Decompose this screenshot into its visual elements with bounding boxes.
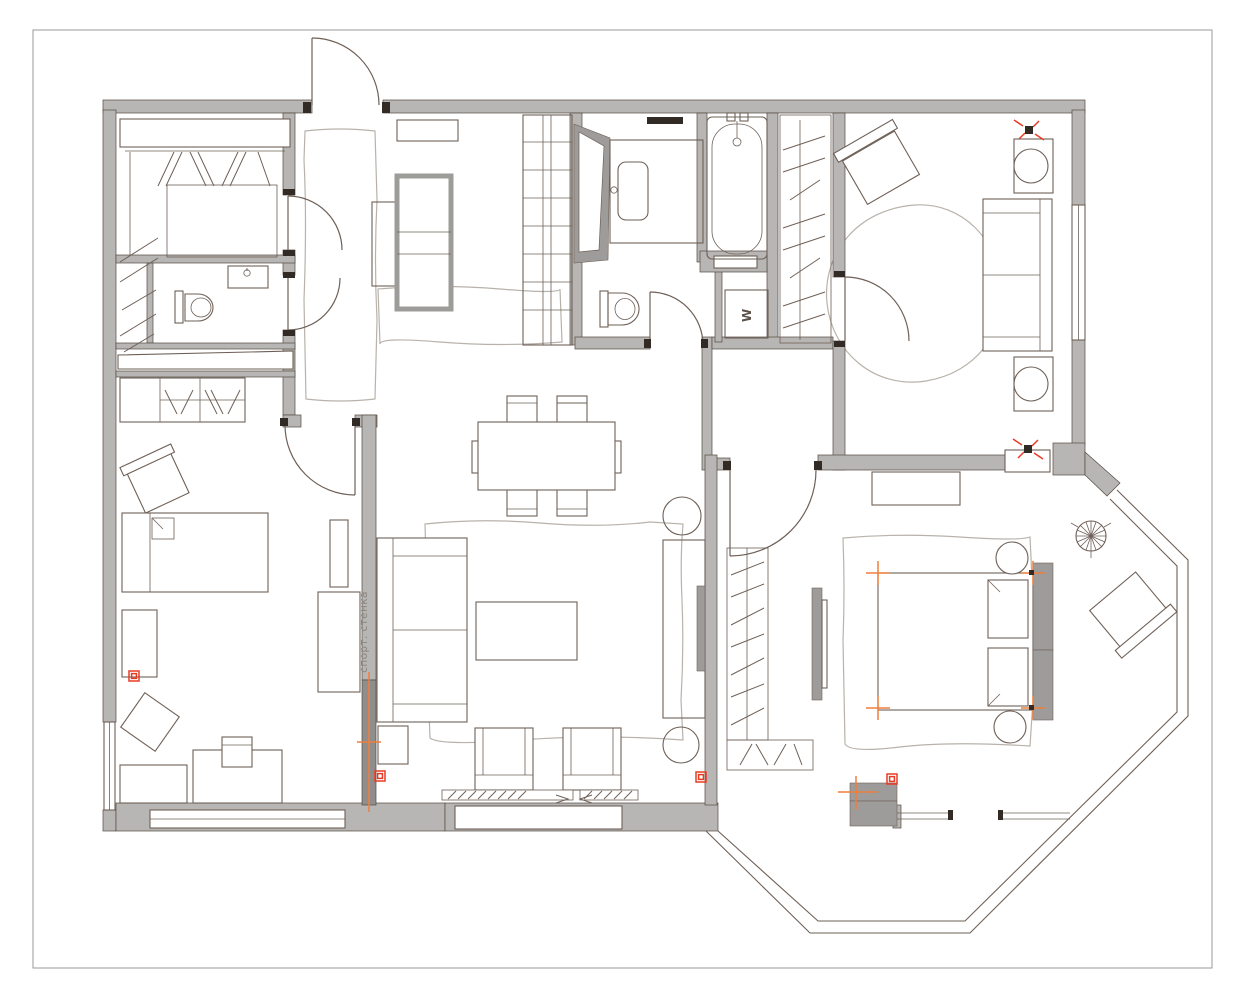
- bedroom-wardrobe: [727, 548, 813, 770]
- kids-room-door: [280, 418, 360, 495]
- walk-in-closet: [120, 119, 290, 352]
- wc: [175, 266, 268, 323]
- headboard-top: [1033, 563, 1053, 650]
- bedroom-tv: [812, 588, 827, 700]
- living-armchair-2: [563, 728, 621, 790]
- headboard-bottom: [1033, 650, 1053, 720]
- closet-island: [167, 185, 277, 257]
- bathroom-vanity: [610, 140, 703, 243]
- living-armchair-1: [475, 728, 533, 790]
- wardrobe-room: [780, 115, 831, 343]
- bathroom-door: [644, 292, 708, 348]
- plant-bottom: [663, 727, 699, 763]
- vent-mark: [647, 117, 683, 124]
- ceiling-light-1: [1014, 120, 1044, 140]
- entrance-door: [303, 38, 390, 113]
- lounge-armchair: [834, 120, 923, 207]
- bathroom-sink: [618, 162, 648, 220]
- laundry: W: [725, 290, 768, 338]
- sport-wall-unit: [318, 592, 360, 692]
- wardrobe-hatch: [783, 136, 825, 328]
- bedroom-door: [723, 461, 822, 556]
- kids-desk: [193, 737, 282, 803]
- bedroom-dresser: [872, 472, 960, 505]
- lounge-right-window: [1072, 205, 1085, 340]
- bay-armchair: [1085, 568, 1177, 658]
- living-side-table: [378, 726, 408, 764]
- dining-table: [478, 422, 615, 490]
- living-room-balcony-window: [455, 806, 622, 829]
- lounge-sofa: [983, 199, 1052, 351]
- bathroom-toilet: [600, 291, 639, 327]
- outlet-kids-2: [375, 771, 385, 781]
- bedroom-bottom-window: [897, 810, 1070, 820]
- pillow-1: [988, 580, 1028, 638]
- bay-plant: [1071, 521, 1111, 558]
- lounge-side-table-top: [1014, 139, 1053, 193]
- window-sill-unit: [1005, 450, 1050, 472]
- closet-shelf: [120, 119, 290, 147]
- kids-cabinet: [120, 765, 187, 803]
- kids-wardrobe: [120, 378, 245, 422]
- tv-console: [663, 540, 705, 718]
- wc-toilet: [175, 291, 213, 323]
- kids-bed: [122, 513, 268, 592]
- closet-door: [283, 189, 342, 256]
- kids-room-left-window: [104, 722, 115, 810]
- bathtub: [707, 113, 767, 259]
- kids-room-bottom-window: [150, 810, 345, 828]
- hall-cabinet: [397, 120, 458, 141]
- wc-door: [283, 272, 340, 336]
- nightstand-top: [996, 542, 1028, 574]
- lounge-door: [834, 271, 909, 347]
- bathroom: [574, 113, 767, 327]
- washer-label: W: [740, 309, 754, 322]
- kids-room: [120, 378, 360, 803]
- hallway: [372, 115, 572, 345]
- hall-mirror: [118, 351, 293, 369]
- closet-hanging-hatch-top: [158, 152, 270, 186]
- pillow-2: [988, 648, 1028, 706]
- double-bed: [878, 563, 1053, 720]
- hallway-runner-rug: [304, 129, 377, 401]
- kids-desk-chair: [121, 693, 179, 751]
- floor-plan-drawing: W: [0, 0, 1246, 1000]
- kids-bookshelf: [330, 520, 348, 587]
- hall-bench: [397, 176, 451, 309]
- nightstand-bottom: [994, 711, 1026, 743]
- outlet-bedroom: [887, 774, 897, 784]
- bay-window-glazing: [706, 490, 1188, 933]
- coffee-table: [476, 602, 577, 660]
- lounge-round-rug: [827, 205, 1003, 382]
- lounge-side-table-bottom: [1014, 357, 1053, 411]
- dining-area: [472, 396, 621, 516]
- living-room: [377, 497, 705, 803]
- outlet-living: [696, 772, 706, 782]
- wc-sink: [228, 266, 268, 288]
- bedroom: [727, 450, 1177, 826]
- kids-dresser: [122, 610, 157, 677]
- sliding-door: [442, 790, 638, 803]
- kids-chair: [120, 444, 193, 515]
- lounge: [834, 120, 1053, 411]
- hall-shelving: [523, 115, 572, 345]
- living-sofa: [377, 538, 467, 722]
- tv-panel: [697, 586, 705, 671]
- floor-plan-page: W: [0, 0, 1246, 1000]
- wardrobe-outline: [780, 115, 831, 343]
- sport-wall-label: спорт. стенка: [358, 591, 370, 673]
- bathroom-mirror: [574, 124, 610, 263]
